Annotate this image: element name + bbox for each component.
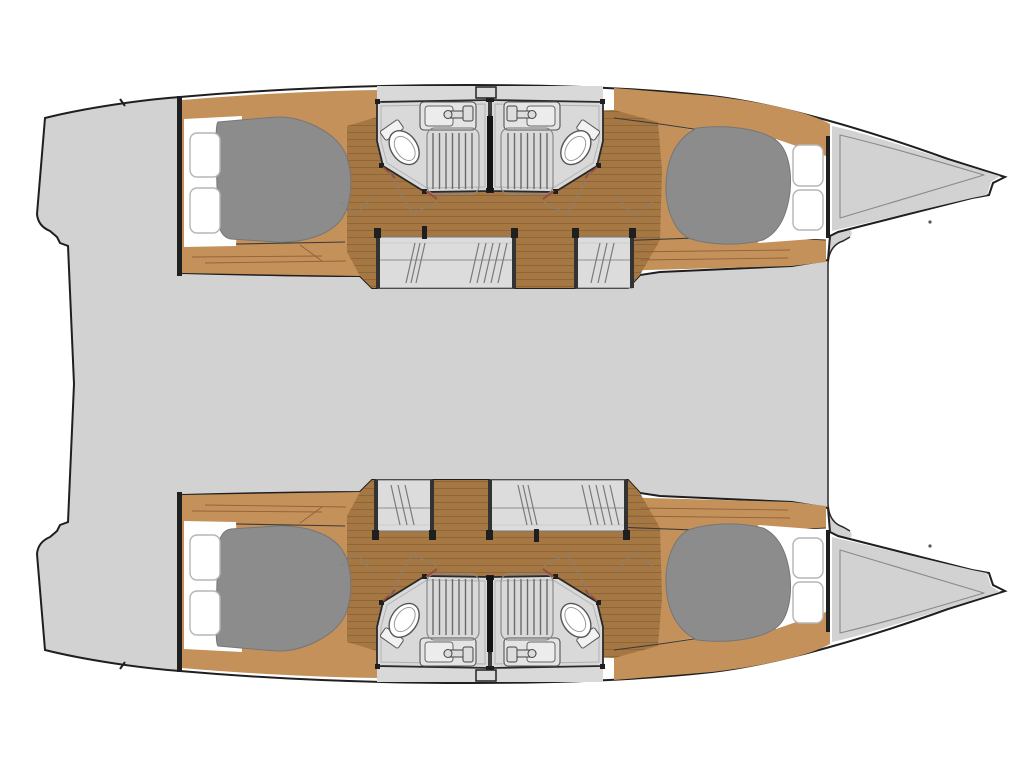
port-steps-narrow [572,228,636,288]
starboard-steps-narrow [372,480,436,540]
floorplan-svg [0,0,1024,768]
